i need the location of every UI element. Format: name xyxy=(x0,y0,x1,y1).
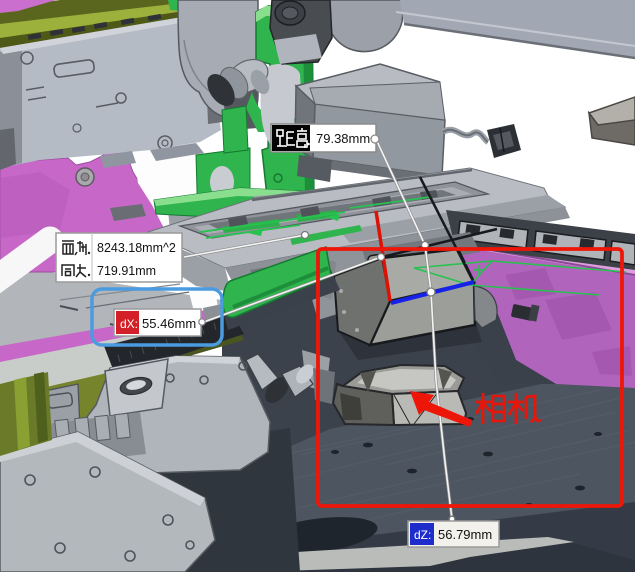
svg-text:56.79mm: 56.79mm xyxy=(438,527,492,542)
svg-text:719.91mm: 719.91mm xyxy=(97,264,156,278)
svg-text:dZ:: dZ: xyxy=(414,528,431,542)
svg-text:dX:: dX: xyxy=(120,317,138,331)
svg-text:55.46mm: 55.46mm xyxy=(142,316,196,331)
svg-text:8243.18mm^2: 8243.18mm^2 xyxy=(97,241,176,255)
svg-text:79.38mm: 79.38mm xyxy=(316,131,370,146)
